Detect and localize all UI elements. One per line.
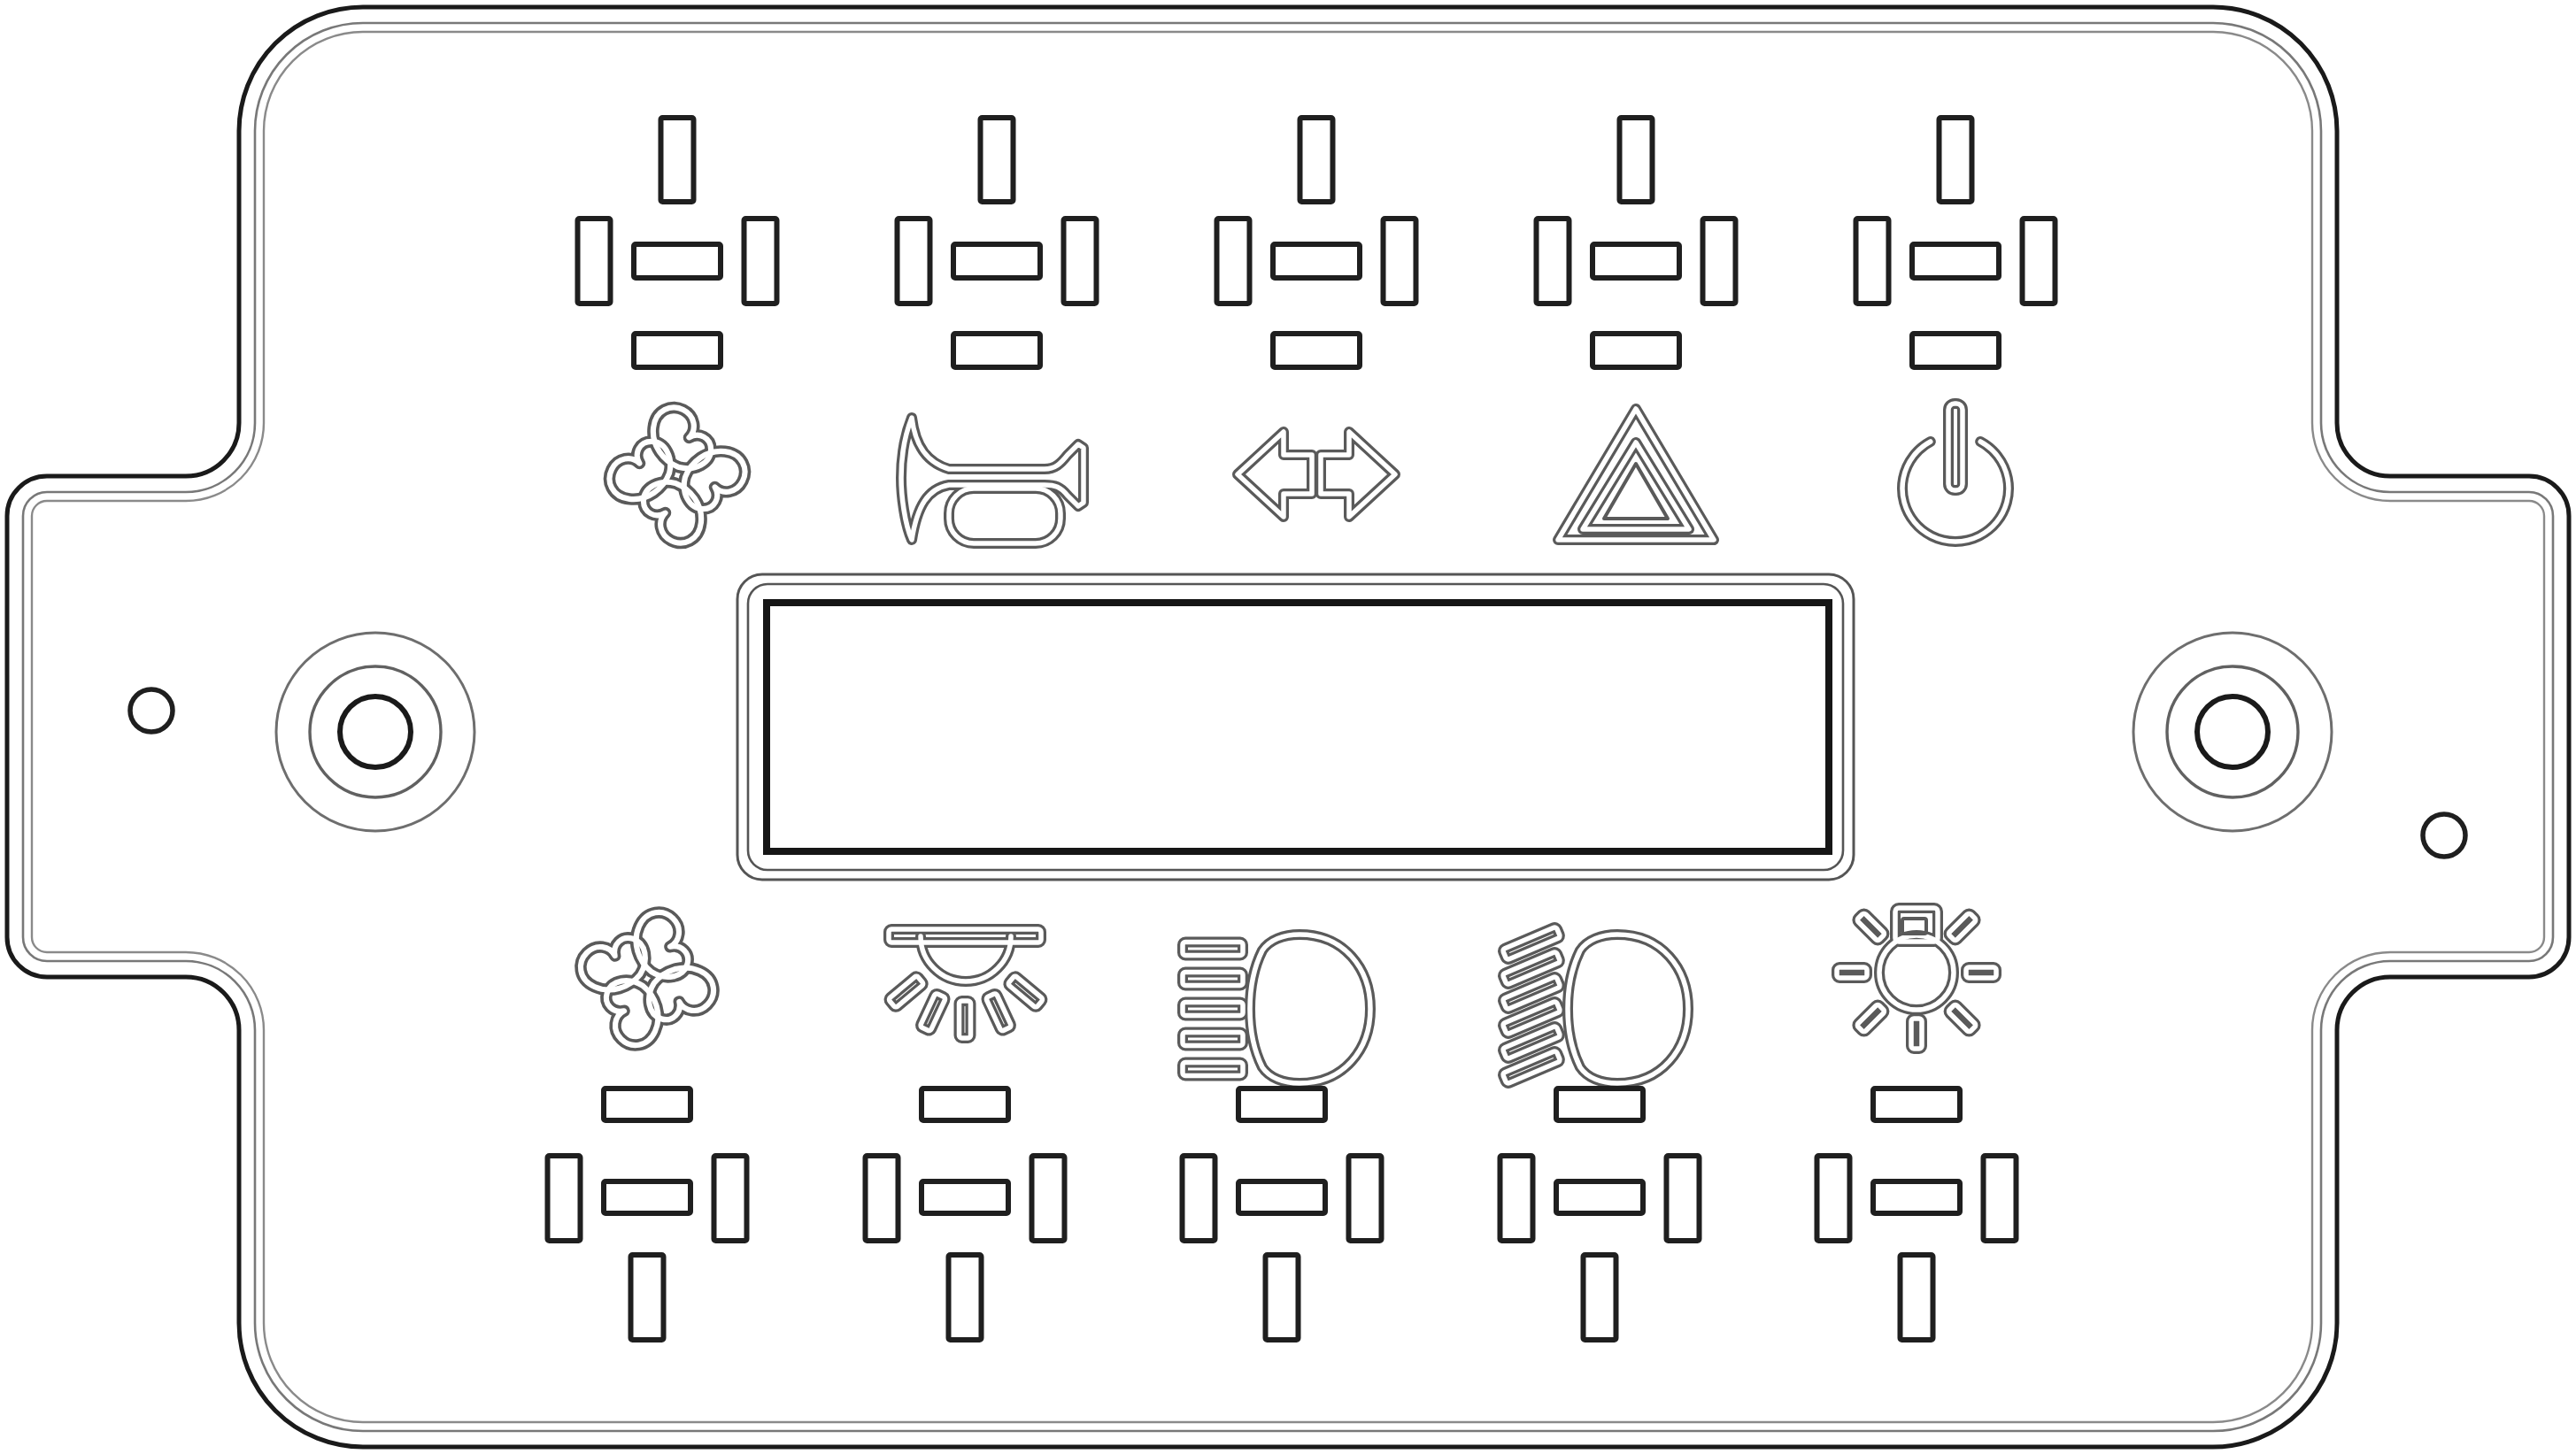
lcd-screen [767, 603, 1829, 851]
horn-icon [901, 418, 1084, 543]
fan-icon [610, 408, 745, 543]
panel-drawing [0, 0, 2576, 1454]
switch-cluster-dome-light[interactable] [866, 1089, 1065, 1340]
switch-cluster-hazard[interactable] [1537, 118, 1736, 367]
low-beam-icon [1502, 927, 1688, 1084]
switch-cluster-high-beam[interactable] [1183, 1089, 1382, 1340]
fan-icon [562, 894, 733, 1065]
power-icon [1902, 404, 2009, 542]
right-indicator-hole [2423, 814, 2465, 857]
switch-cluster-fan-bottom[interactable] [548, 1089, 747, 1340]
switch-cluster-low-beam[interactable] [1500, 1089, 1700, 1340]
turn-signals-icon [1238, 432, 1395, 517]
bottom-icon-row [562, 894, 1996, 1084]
top-icon-row [610, 404, 2009, 543]
switch-cluster-fan-top[interactable] [578, 118, 777, 367]
lcd-display [737, 574, 1854, 880]
top-switch-row [578, 118, 2055, 367]
hazard-icon [1558, 409, 1714, 540]
switch-cluster-turn-signals[interactable] [1217, 118, 1416, 367]
switch-cluster-horn[interactable] [898, 118, 1097, 367]
left-knob[interactable] [276, 633, 474, 831]
switch-cluster-work-light[interactable] [1817, 1089, 2017, 1340]
switch-cluster-power[interactable] [1856, 118, 2055, 367]
right-knob[interactable] [2133, 633, 2332, 831]
bottom-switch-row [548, 1089, 2017, 1340]
left-indicator-hole [130, 689, 173, 732]
high-beam-icon [1183, 935, 1370, 1083]
work-light-icon [1837, 908, 1996, 1049]
dome-light-icon [888, 929, 1043, 1038]
